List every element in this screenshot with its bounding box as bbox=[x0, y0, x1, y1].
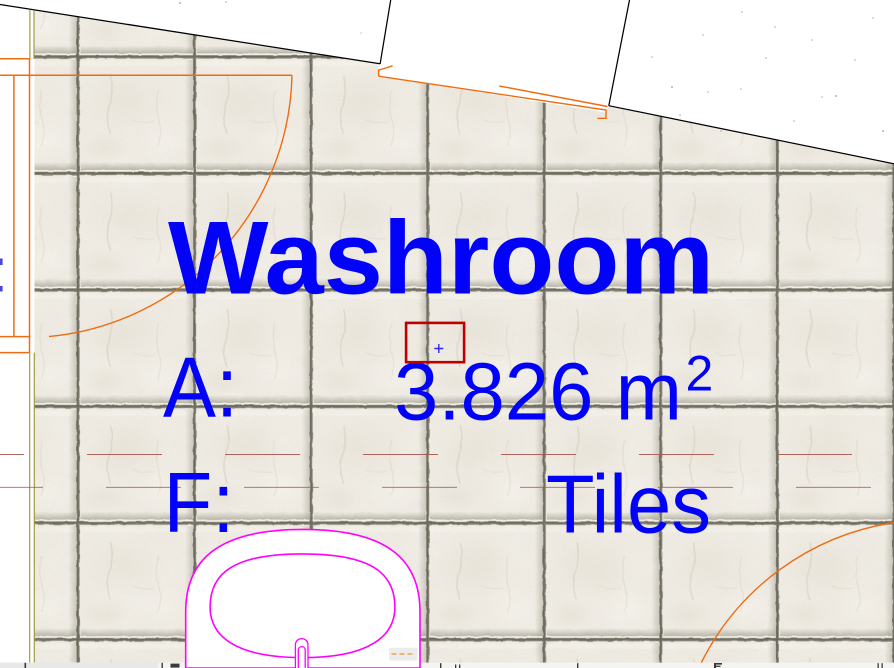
svg-text:2: 2 bbox=[686, 346, 714, 402]
svg-text:3.826 m: 3.826 m bbox=[394, 347, 682, 438]
svg-text:A:: A: bbox=[163, 341, 238, 436]
svg-text:Tiles: Tiles bbox=[546, 458, 711, 551]
svg-text:Washroom: Washroom bbox=[168, 201, 714, 317]
svg-text:F:: F: bbox=[164, 456, 235, 551]
